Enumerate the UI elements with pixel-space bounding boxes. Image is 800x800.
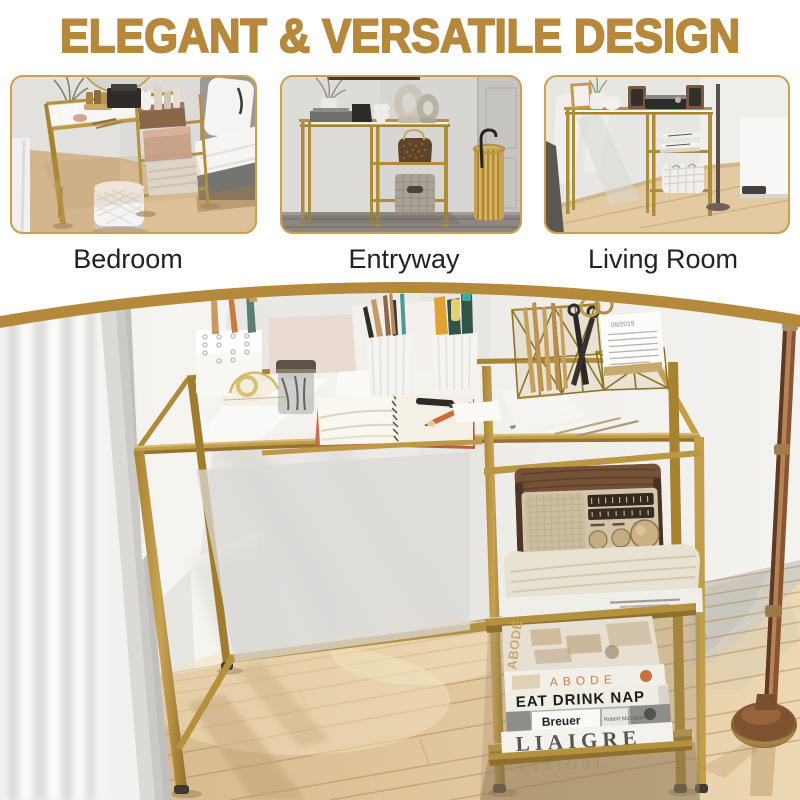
svg-text:Breuer: Breuer: [542, 713, 582, 729]
svg-text:Entryway: Entryway: [348, 244, 460, 274]
svg-text:Living Room: Living Room: [588, 244, 738, 274]
svg-text:ABODE: ABODE: [550, 672, 618, 689]
svg-text:Bedroom: Bedroom: [73, 244, 183, 274]
svg-text:ELEGANT & VERSATILE DESIGN: ELEGANT & VERSATILE DESIGN: [60, 9, 740, 62]
